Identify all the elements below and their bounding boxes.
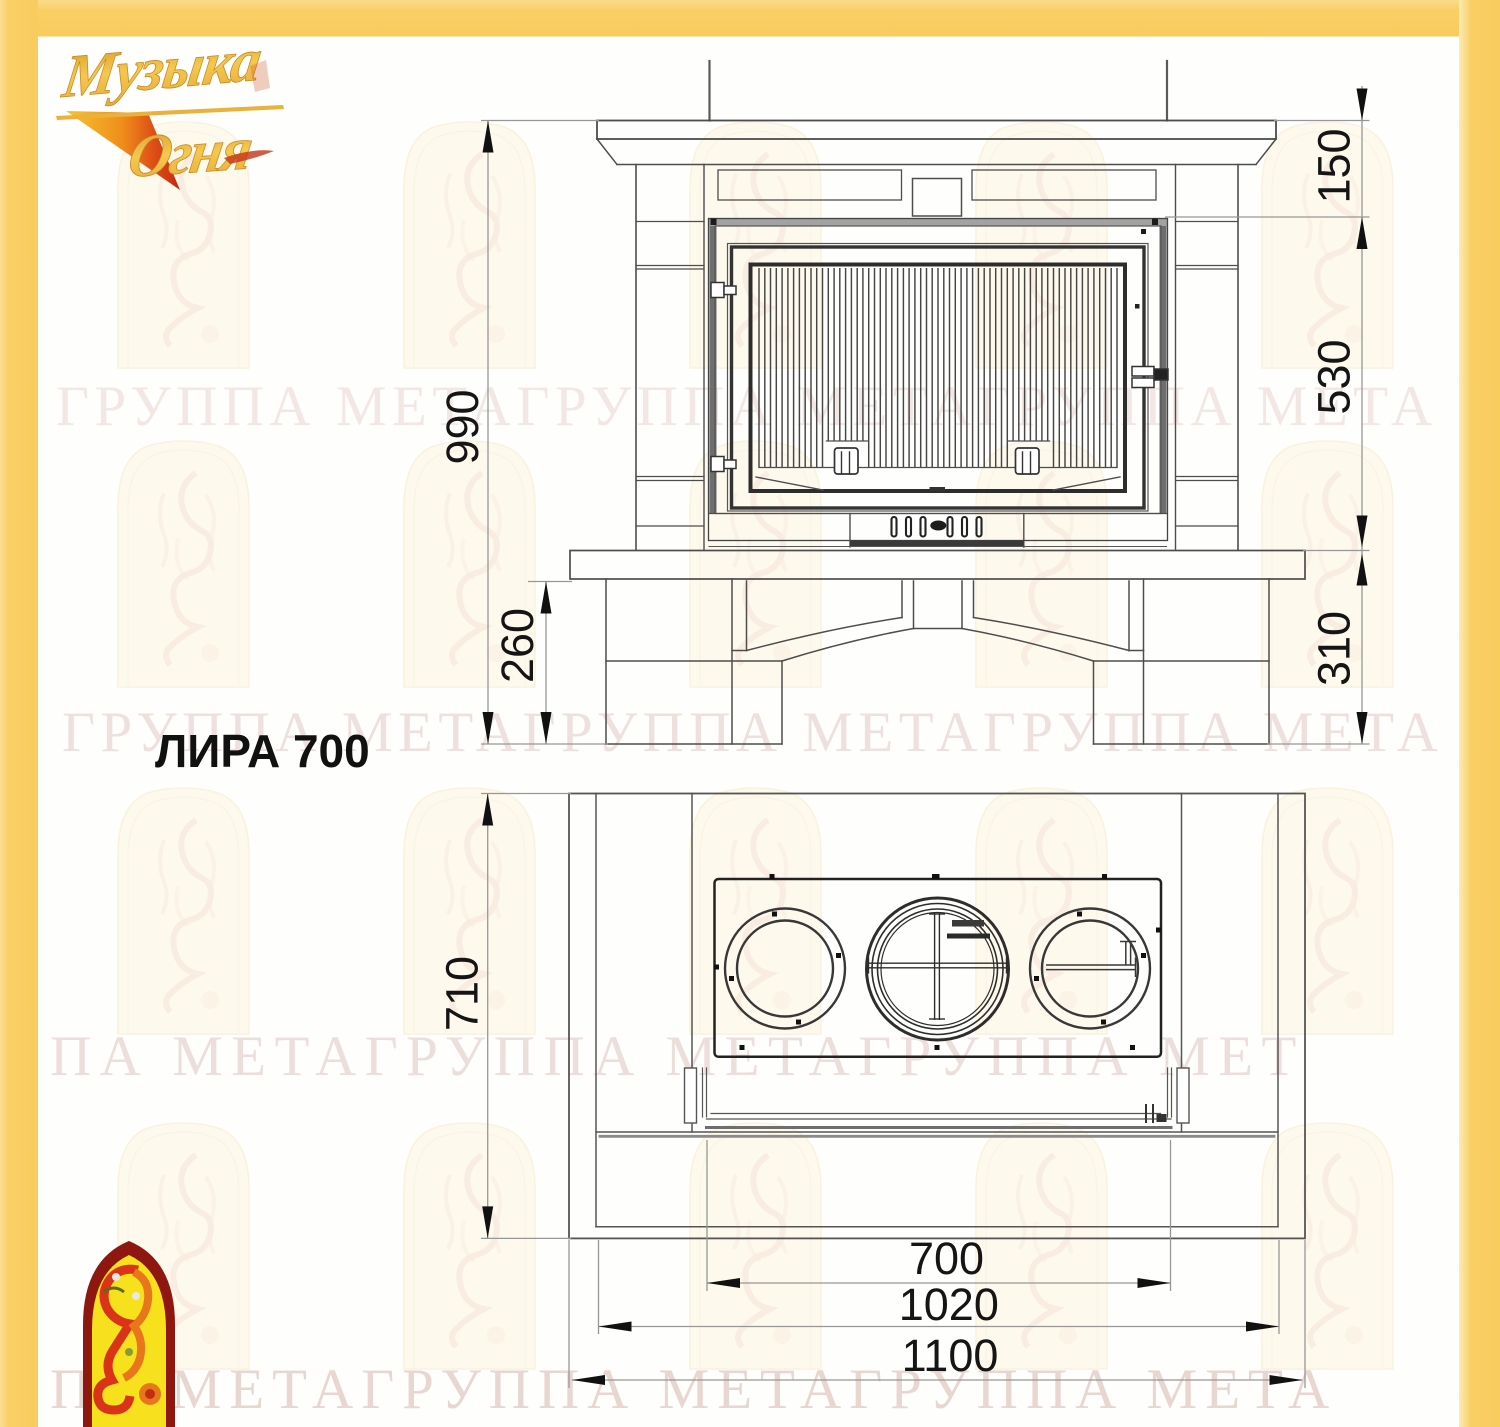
svg-text:990: 990	[437, 389, 488, 464]
svg-text:150: 150	[1309, 128, 1360, 203]
svg-text:530: 530	[1309, 339, 1360, 414]
svg-text:1100: 1100	[902, 1330, 999, 1381]
svg-text:1020: 1020	[899, 1279, 999, 1330]
svg-text:ЛИРА 700: ЛИРА 700	[155, 725, 370, 777]
svg-text:ГРУППА МЕТАГРУППА МЕТАГРУППА М: ГРУППА МЕТАГРУППА МЕТАГРУППА МЕТА	[56, 375, 1437, 438]
svg-text:700: 700	[909, 1233, 984, 1284]
svg-text:ПА МЕТАГРУППА МЕТАГРУППА МЕТА: ПА МЕТАГРУППА МЕТАГРУППА МЕТА	[50, 1358, 1337, 1421]
svg-text:310: 310	[1309, 611, 1360, 686]
svg-text:Огня: Огня	[124, 115, 257, 191]
svg-text:710: 710	[437, 956, 488, 1031]
svg-text:260: 260	[492, 608, 543, 683]
